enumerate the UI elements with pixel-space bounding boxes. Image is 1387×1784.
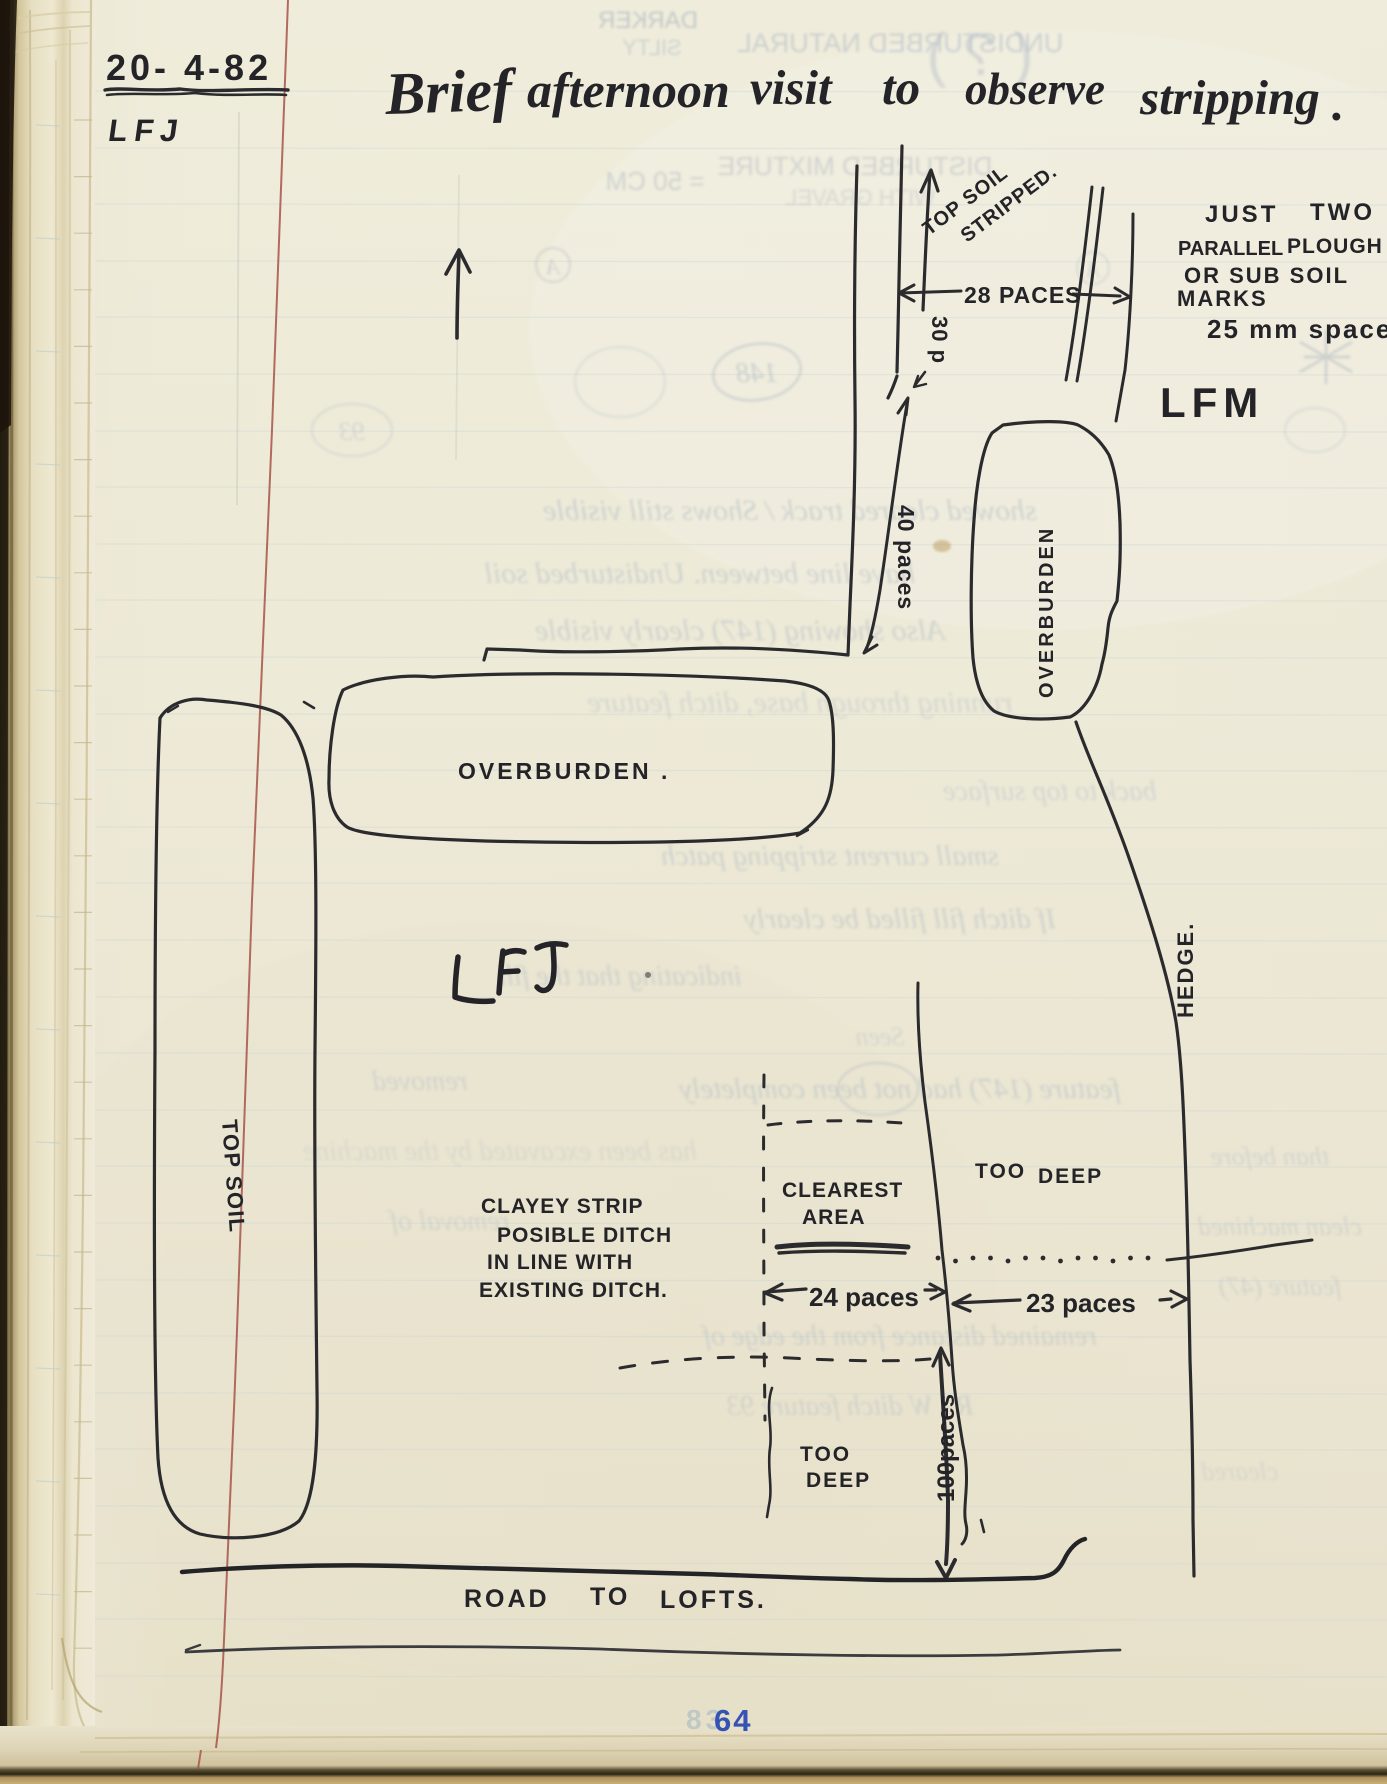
svg-text:removed: removed [371,1066,467,1097]
svg-text:LFJ: LFJ [106,113,187,148]
svg-text:Seen: Seen [855,1022,904,1051]
svg-text:LFM: LFM [1160,379,1264,426]
svg-text:64: 64 [714,1703,752,1738]
svg-text:A: A [546,254,562,279]
svg-text:afternoon: afternoon [527,62,730,118]
svg-text:stripping: stripping [1139,70,1320,125]
svg-text:93: 93 [339,417,365,446]
svg-text:30 p: 30 p [927,316,952,364]
svg-text:100paces: 100paces [933,1394,960,1502]
svg-text:clean machined: clean machined [1197,1212,1362,1241]
svg-text:AREA: AREA [802,1206,866,1229]
svg-text:visit: visit [750,60,833,115]
svg-text:small current stripping patch: small current stripping patch [661,840,999,872]
svg-text:JUST: JUST [1205,201,1278,228]
svg-text:23 paces: 23 paces [1026,1288,1136,1318]
svg-text:running through base, ditch fe: running through base, ditch feature [587,686,1012,719]
svg-text:to: to [882,60,920,115]
svg-text:TOO: TOO [800,1443,851,1466]
svg-text:back to top surface: back to top surface [943,776,1157,807]
svg-text:OVERBURDEN: OVERBURDEN [1036,526,1058,698]
svg-text:OVERBURDEN .: OVERBURDEN . [458,758,670,784]
svg-text:TOO: TOO [975,1160,1026,1183]
svg-text:20- 4-82: 20- 4-82 [106,47,272,88]
svg-text:TWO: TWO [1310,199,1375,226]
svg-text:DEEP: DEEP [1038,1165,1103,1188]
svg-text:IN LINE WITH: IN LINE WITH [487,1251,633,1274]
svg-text:25 mm space: 25 mm space [1207,314,1387,344]
svg-text:EXISTING DITCH.: EXISTING DITCH. [479,1279,668,1302]
svg-text:148: 148 [736,358,778,389]
svg-text:MARKS: MARKS [1177,286,1268,311]
svg-text:If ditch fill filled be clearl: If ditch fill filled be clearly [744,903,1057,935]
svg-text:PARALLEL: PARALLEL [1178,238,1283,260]
svg-text:observe: observe [965,64,1105,114]
svg-text:cleared: cleared [1201,1457,1279,1486]
svg-text:DARKER: DARKER [598,7,698,34]
svg-text:than before: than before [1211,1142,1329,1171]
svg-text:LOFTS.: LOFTS. [660,1586,767,1614]
svg-text:ROAD: ROAD [464,1585,550,1613]
svg-text:feature (47): feature (47) [1219,1272,1342,1301]
svg-text:PLOUGH: PLOUGH [1287,235,1383,258]
svg-text:POSIBLE DITCH: POSIBLE DITCH [497,1224,672,1247]
svg-text:feature (147) had not been com: feature (147) had not been completely [679,1073,1120,1105]
svg-text:Brief: Brief [383,56,518,127]
svg-text:Also showing (147) clearly vis: Also showing (147) clearly visible [535,614,947,647]
svg-text:SILTY: SILTY [622,35,682,60]
svg-text:40 paces: 40 paces [893,505,919,610]
svg-text:24 paces: 24 paces [809,1282,919,1312]
svg-text:WITH GRAVEL: WITH GRAVEL [785,185,935,210]
svg-text:CLAYEY STRIP: CLAYEY STRIP [481,1195,644,1218]
svg-text:CLEAREST: CLEAREST [782,1179,903,1202]
svg-text:showed cleared track / Shows s: showed cleared track / Shows still visib… [543,494,1037,527]
svg-text:has been excavated by the mach: has been excavated by the machine [303,1136,697,1167]
svg-text:TO: TO [590,1583,630,1611]
svg-text:.: . [1332,76,1344,131]
svg-text:= 50 CM: = 50 CM [606,166,705,196]
svg-text:OR SUB SOIL: OR SUB SOIL [1184,263,1349,288]
svg-text:HEDGE.: HEDGE. [1173,922,1198,1018]
svg-text:DEEP: DEEP [806,1469,871,1492]
svg-text:DISTURBED MIXTURE: DISTURBED MIXTURE [718,151,992,181]
svg-text:remained distance from the edg: remained distance from the edge of [700,1321,1097,1352]
svg-text:28 PACES: 28 PACES [964,282,1082,308]
